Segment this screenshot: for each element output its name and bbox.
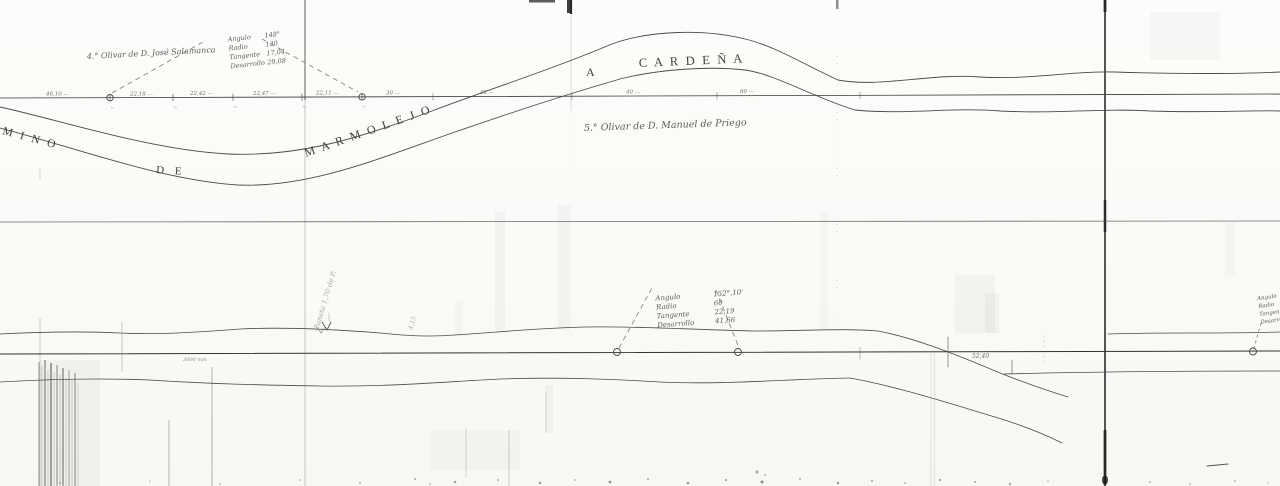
- tick-number: 3: [173, 106, 178, 109]
- tick-number: 2: [110, 106, 115, 110]
- tick-number: 2: [302, 105, 307, 109]
- lower-road-upper-edge-right: [1108, 332, 1280, 334]
- plan-drawing: 46,10 — 22,18 — 22,42 — 22,47 — 22,11 — …: [0, 0, 1280, 486]
- deviation-lower: [850, 378, 1062, 443]
- table-label: Radio: [655, 302, 677, 311]
- road-name-marmolejo: M A R M O L E J O: [302, 102, 433, 160]
- table-label: Desarrollo: [656, 319, 695, 330]
- station-marker: [614, 349, 621, 356]
- table-label: Angulo: [1256, 293, 1278, 302]
- curve-table-1: Angulo 148° Radio 130 Tangente 17,04 Des…: [226, 30, 286, 71]
- lower-road-upper-edge: [0, 327, 878, 336]
- lower-road-lower-edge-right: [1004, 371, 1280, 374]
- road-name-a: A: [586, 65, 595, 79]
- middle-rule: [0, 221, 1280, 222]
- table-value: 130: [265, 39, 278, 48]
- lower-baseline: [0, 351, 1280, 354]
- stray-dash: [1207, 464, 1228, 466]
- lower-ticks: [860, 336, 1044, 486]
- deviation-upper: [878, 331, 1068, 397]
- table-label: Radio: [1257, 302, 1275, 310]
- road-name-camino: M I N O: [1, 125, 59, 151]
- table-value: 29,08: [266, 57, 286, 67]
- curve-table-2: Angulo 152°,10' Radio 60 Tangente 22,19 …: [654, 288, 745, 329]
- pencil-note-cuneta: Cuneta 1,70 de P.: [312, 270, 338, 332]
- distance-52-40: 52,40: [972, 353, 989, 360]
- paper-stains: [40, 12, 1235, 486]
- table-value: 41,66: [714, 316, 736, 325]
- distance-label: 22,42 —: [189, 91, 213, 97]
- baseline-tick-numbers: 2 3 2 2 3: [110, 105, 367, 110]
- road-name: M I N O D E M A R M O L E J O A C A R D …: [1, 51, 745, 178]
- table-value: 148°: [264, 30, 280, 40]
- distance-label: 22,47 —: [252, 91, 276, 97]
- distance-label: 22,11 —: [315, 91, 339, 97]
- road-name-cardena: C A R D E Ñ A: [639, 51, 745, 70]
- lower-profile: [0, 313, 1280, 486]
- pencil-note-grade: 4,15: [407, 316, 418, 332]
- distance-label: 46,10 —: [45, 92, 69, 98]
- landmark-olivar-5: 5.° Olivar de D. Manuel de Priego: [584, 117, 747, 134]
- table-value: 60: [714, 299, 724, 308]
- landmark-olivar-4: 4.° Olivar de D. José Salamanca: [86, 45, 216, 61]
- leader-dashes: [112, 39, 1261, 348]
- edge-speckles: [59, 471, 1269, 486]
- table-label: Angulo: [226, 33, 251, 43]
- table-value: 152°,10': [713, 288, 743, 298]
- pencil-notes: Cuneta 1,70 de P. 4,15: [312, 270, 418, 332]
- distance-label: 22,18 —: [129, 91, 153, 97]
- tick-number: 3: [362, 105, 367, 108]
- fold-creases: [40, 0, 1108, 486]
- road-name-de: D E: [156, 164, 186, 178]
- distance-label: 60 —: [740, 89, 755, 95]
- distance-label: 30 —: [386, 90, 401, 96]
- lower-road-lower-edge: [0, 378, 850, 386]
- table-value: 22,19: [713, 307, 735, 316]
- scanned-survey-plan: 46,10 — 22,18 — 22,42 — 22,47 — 22,11 — …: [0, 0, 1280, 486]
- table-label: Angulo: [654, 293, 681, 303]
- distance-label: 40 —: [625, 90, 641, 96]
- distance-label: 42 —: [479, 90, 495, 96]
- table-label: Tangente: [1259, 308, 1280, 318]
- tick-number: 2: [233, 105, 238, 109]
- scale-note: 3000 mm: [183, 357, 207, 363]
- curve-table-3-clipped: Angulo Radio Tangente Desarrollo: [1256, 292, 1280, 326]
